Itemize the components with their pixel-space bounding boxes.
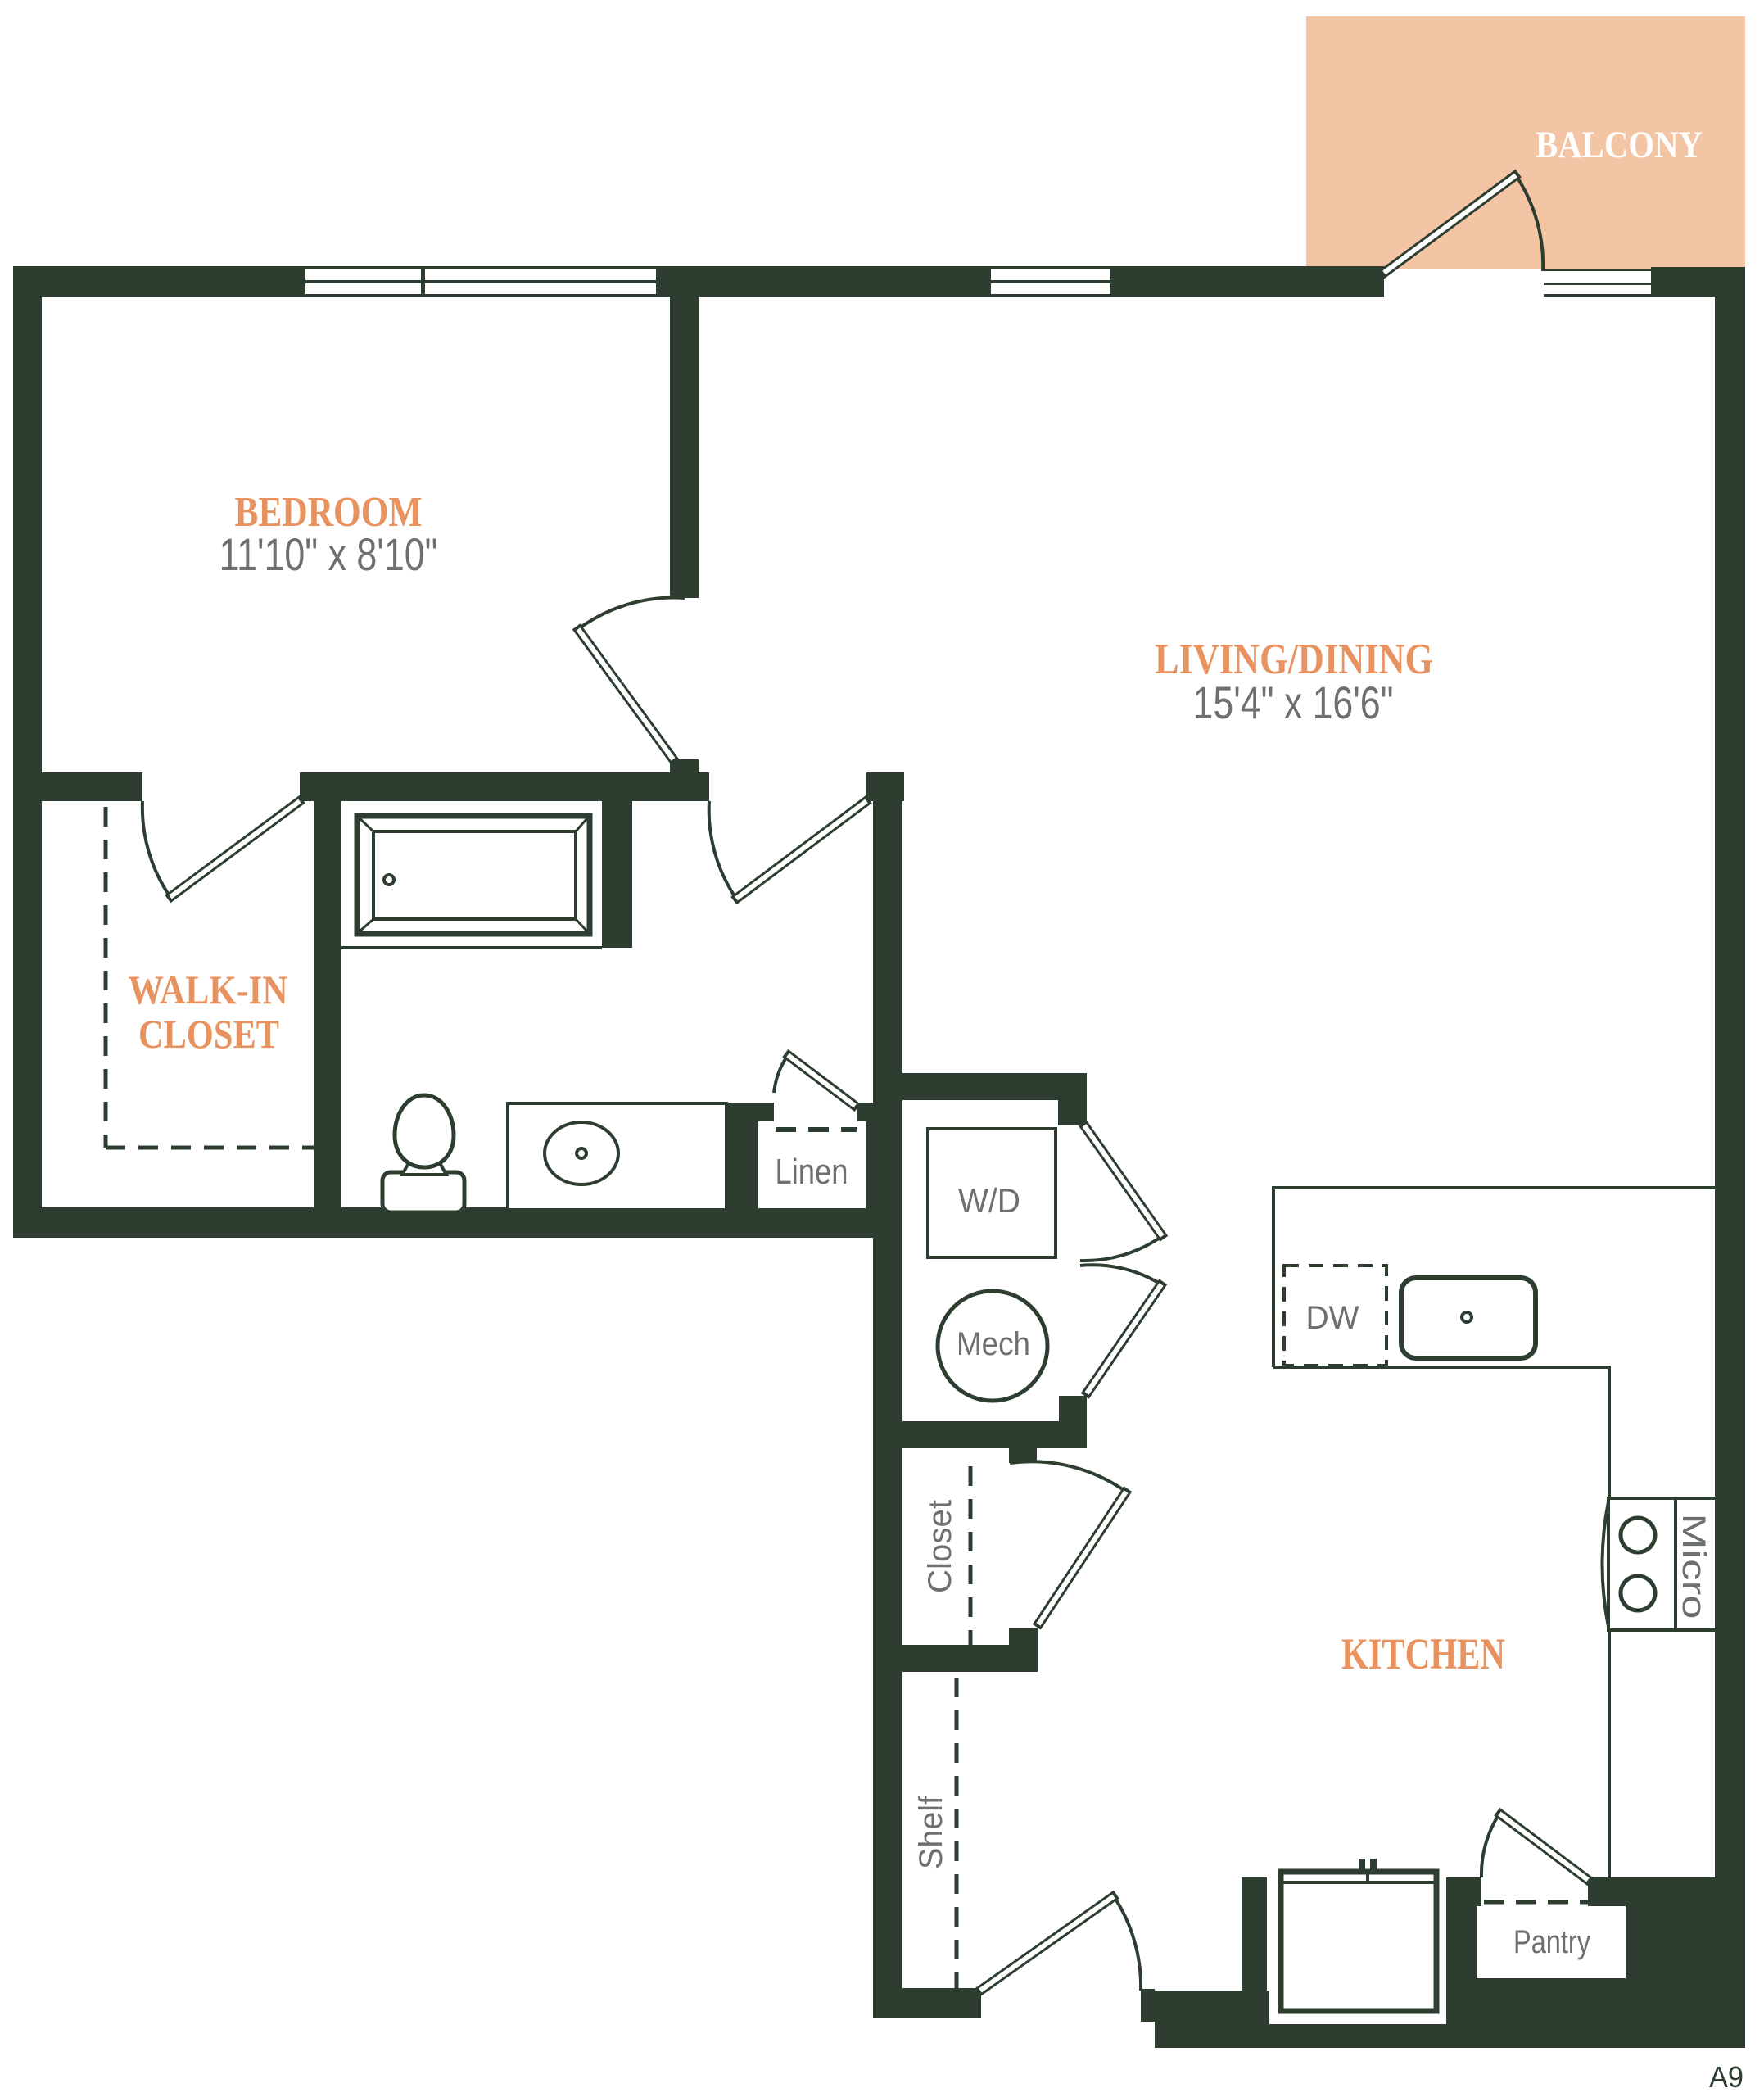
svg-text:BALCONY: BALCONY	[1536, 124, 1703, 166]
svg-text:KITCHEN: KITCHEN	[1341, 1629, 1505, 1678]
svg-text:15'4" x 16'6": 15'4" x 16'6"	[1193, 677, 1394, 728]
svg-text:Closet: Closet	[922, 1500, 958, 1593]
svg-text:Mech: Mech	[957, 1326, 1030, 1362]
svg-text:Micro: Micro	[1676, 1514, 1712, 1619]
svg-text:Linen: Linen	[776, 1152, 848, 1192]
svg-text:CLOSET: CLOSET	[138, 1011, 279, 1057]
svg-text:W/D: W/D	[958, 1181, 1020, 1220]
svg-text:11'10" x 8'10": 11'10" x 8'10"	[219, 528, 438, 580]
svg-text:WALK-IN: WALK-IN	[129, 967, 288, 1012]
svg-text:Shelf: Shelf	[913, 1795, 949, 1869]
svg-text:DW: DW	[1306, 1300, 1359, 1336]
svg-text:A9: A9	[1709, 2060, 1744, 2094]
svg-text:Pantry: Pantry	[1513, 1924, 1590, 1960]
